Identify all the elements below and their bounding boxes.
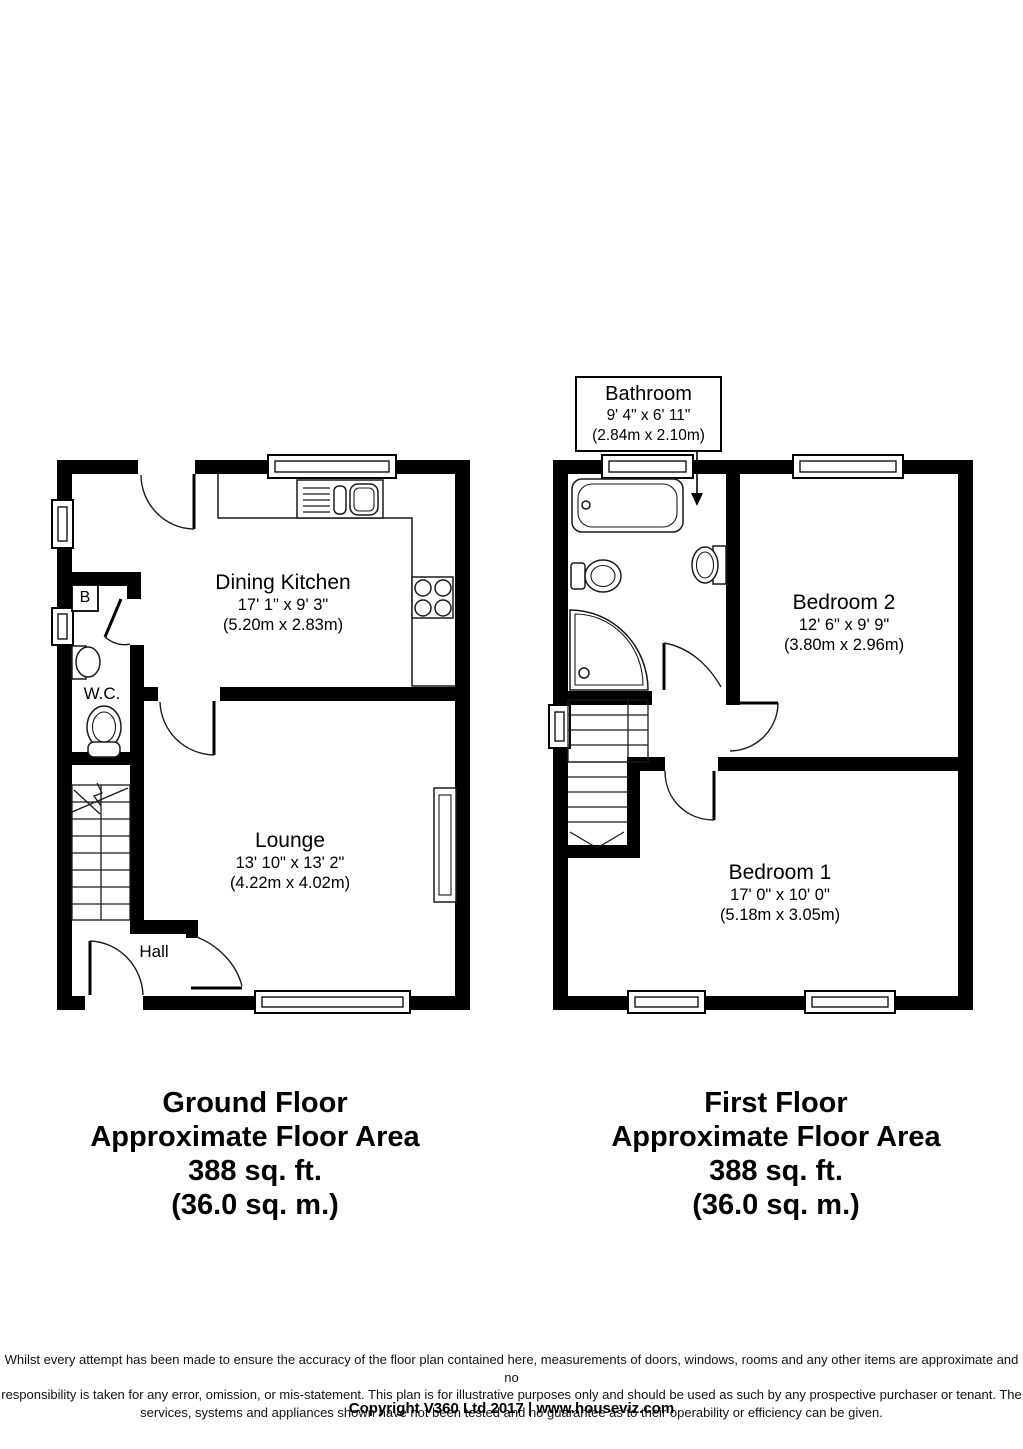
door-arc bbox=[664, 643, 721, 690]
hob bbox=[412, 577, 453, 618]
ff-toilet bbox=[571, 560, 621, 592]
room-dims-imperial: 13' 10" x 13' 2" bbox=[170, 853, 410, 873]
hall-label: Hall bbox=[123, 942, 185, 962]
room-name: Bedroom 2 bbox=[724, 590, 964, 615]
ff-doors bbox=[664, 643, 778, 820]
room-name: Lounge bbox=[170, 828, 410, 853]
caption-title: Ground Floor bbox=[45, 1086, 465, 1120]
window bbox=[52, 608, 73, 645]
window bbox=[268, 455, 396, 478]
radiator bbox=[434, 788, 456, 902]
bathtub bbox=[572, 479, 683, 532]
window bbox=[805, 991, 895, 1013]
copyright-text: Copyright V360 Ltd 2017 | www.houseviz.c… bbox=[0, 1400, 1023, 1417]
room-name: Bedroom 1 bbox=[660, 860, 900, 885]
gf-stairs bbox=[72, 783, 130, 920]
dining-kitchen-label: Dining Kitchen 17' 1" x 9' 3" (5.20m x 2… bbox=[158, 570, 408, 635]
first-floor-caption: First Floor Approximate Floor Area 388 s… bbox=[566, 1086, 986, 1222]
wc-label: W.C. bbox=[76, 684, 128, 704]
room-dims-metric: (5.20m x 2.83m) bbox=[158, 615, 408, 635]
floorplan-page: Dining Kitchen 17' 1" x 9' 3" (5.20m x 2… bbox=[0, 0, 1023, 1449]
window bbox=[52, 500, 73, 548]
wc-sink bbox=[72, 646, 100, 679]
lounge-label: Lounge 13' 10" x 13' 2" (4.22m x 4.02m) bbox=[170, 828, 410, 893]
disclaimer-line: Whilst every attempt has been made to en… bbox=[0, 1351, 1023, 1386]
room-dims-metric: (5.18m x 3.05m) bbox=[660, 905, 900, 925]
boiler-label: B bbox=[72, 589, 98, 607]
door-arc bbox=[141, 474, 194, 529]
room-dims-imperial: 17' 0" x 10' 0" bbox=[660, 885, 900, 905]
ground-floor-caption: Ground Floor Approximate Floor Area 388 … bbox=[45, 1086, 465, 1222]
room-dims-metric: (2.84m x 2.10m) bbox=[576, 426, 721, 446]
room-dims-imperial: 17' 1" x 9' 3" bbox=[158, 595, 408, 615]
door-arc bbox=[105, 599, 130, 645]
kitchen-sink bbox=[297, 480, 383, 518]
room-name: Bathroom bbox=[576, 382, 721, 406]
window bbox=[255, 991, 410, 1013]
caption-area-metric: (36.0 sq. m.) bbox=[566, 1188, 986, 1222]
caption-title: First Floor bbox=[566, 1086, 986, 1120]
door-arc bbox=[191, 936, 242, 988]
door-arc bbox=[665, 771, 714, 820]
caption-area-imperial: 388 sq. ft. bbox=[566, 1154, 986, 1188]
door-arc bbox=[160, 701, 214, 755]
bedroom2-label: Bedroom 2 12' 6" x 9' 9" (3.80m x 2.96m) bbox=[724, 590, 964, 655]
ff-walls bbox=[553, 460, 973, 1010]
arrow-down-icon bbox=[691, 493, 703, 506]
room-dims-metric: (3.80m x 2.96m) bbox=[724, 635, 964, 655]
caption-area-imperial: 388 sq. ft. bbox=[45, 1154, 465, 1188]
corner-shower bbox=[570, 610, 648, 690]
window bbox=[628, 991, 705, 1013]
floorplan-drawing bbox=[0, 0, 1023, 1449]
caption-subtitle: Approximate Floor Area bbox=[566, 1120, 986, 1154]
caption-subtitle: Approximate Floor Area bbox=[45, 1120, 465, 1154]
bathroom-label: Bathroom 9' 4" x 6' 11" (2.84m x 2.10m) bbox=[576, 382, 721, 446]
ground-floor-plan bbox=[52, 455, 470, 1013]
window bbox=[602, 455, 693, 478]
room-dims-imperial: 9' 4" x 6' 11" bbox=[576, 406, 721, 426]
door-arc bbox=[730, 703, 778, 751]
room-dims-metric: (4.22m x 4.02m) bbox=[170, 873, 410, 893]
caption-area-metric: (36.0 sq. m.) bbox=[45, 1188, 465, 1222]
window bbox=[793, 455, 903, 478]
wc-toilet bbox=[87, 706, 121, 757]
bedroom1-label: Bedroom 1 17' 0" x 10' 0" (5.18m x 3.05m… bbox=[660, 860, 900, 925]
bathroom-sink bbox=[692, 546, 726, 584]
room-dims-imperial: 12' 6" x 9' 9" bbox=[724, 615, 964, 635]
window bbox=[549, 705, 570, 748]
room-name: Dining Kitchen bbox=[158, 570, 408, 595]
